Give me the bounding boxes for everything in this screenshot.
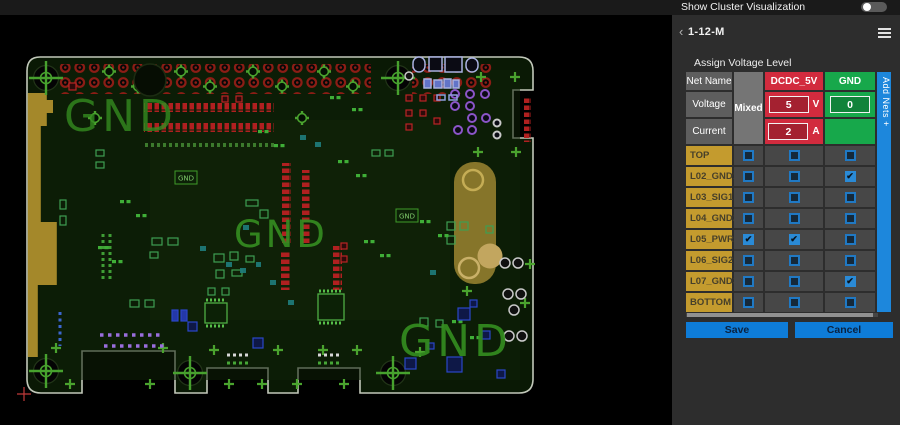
layer-label: BOTTOM bbox=[686, 293, 732, 312]
layer-row-l06_sig2: L06_SIG2 bbox=[686, 251, 875, 270]
layer-label: L07_GND3 bbox=[686, 272, 732, 291]
gnd-text-bottom: GND bbox=[399, 316, 512, 367]
table-header-row: Net Name DCDC_5V GND bbox=[686, 72, 875, 90]
checkbox-cell bbox=[765, 146, 823, 165]
checkbox-checked[interactable]: ✔ bbox=[743, 234, 754, 245]
current-row: Current 2 A bbox=[686, 119, 875, 144]
checkbox[interactable] bbox=[743, 213, 754, 224]
checkbox-cell: ✔ bbox=[825, 167, 875, 186]
cluster-visualization-label: Show Cluster Visualization bbox=[681, 1, 805, 13]
current-row-label: Current bbox=[686, 119, 732, 144]
checkbox[interactable] bbox=[743, 150, 754, 161]
copper-yellow-stadium bbox=[454, 162, 503, 284]
checkbox-cell bbox=[734, 188, 763, 207]
scrollbar-thumb[interactable] bbox=[687, 313, 873, 317]
checkbox[interactable] bbox=[845, 297, 856, 308]
checkbox[interactable] bbox=[743, 171, 754, 182]
dcdc-current-input[interactable]: 2 bbox=[768, 123, 808, 140]
layer-row-l02_gnd1: L02_GND1✔ bbox=[686, 167, 875, 186]
net-header-dcdc-5v[interactable]: DCDC_5V bbox=[765, 72, 823, 90]
checkbox-cell bbox=[825, 230, 875, 249]
checkbox-cell bbox=[765, 188, 823, 207]
checkbox-checked[interactable]: ✔ bbox=[789, 234, 800, 245]
checkbox[interactable] bbox=[789, 171, 800, 182]
toggle-knob bbox=[863, 3, 871, 11]
menu-icon[interactable] bbox=[878, 28, 891, 38]
gnd-text-topleft: GND bbox=[64, 91, 177, 142]
layer-label: TOP bbox=[686, 146, 732, 165]
checkbox[interactable] bbox=[743, 297, 754, 308]
layer-row-bottom: BOTTOM bbox=[686, 293, 875, 312]
checkbox[interactable] bbox=[845, 192, 856, 203]
add-nets-button[interactable]: Add Nets + bbox=[877, 72, 891, 312]
svg-text:GND: GND bbox=[399, 213, 415, 221]
layer-row-top: TOP bbox=[686, 146, 875, 165]
section-title: Assign Voltage Level bbox=[694, 57, 791, 69]
net-header-gnd[interactable]: GND bbox=[825, 72, 875, 90]
checkbox-cell bbox=[825, 293, 875, 312]
voltage-table: Mixed Net Name DCDC_5V GND Voltage 5 V 0 bbox=[686, 72, 875, 312]
checkbox[interactable] bbox=[845, 234, 856, 245]
checkbox[interactable] bbox=[789, 213, 800, 224]
gnd-voltage-input[interactable]: 0 bbox=[830, 96, 870, 113]
horizontal-scrollbar[interactable] bbox=[686, 313, 878, 317]
save-button[interactable]: Save bbox=[686, 322, 788, 338]
layer-label: L06_SIG2 bbox=[686, 251, 732, 270]
layer-label: L03_SIG1 bbox=[686, 188, 732, 207]
checkbox-cell: ✔ bbox=[765, 230, 823, 249]
checkbox-cell bbox=[734, 167, 763, 186]
checkbox[interactable] bbox=[743, 276, 754, 287]
checkbox-cell: ✔ bbox=[825, 272, 875, 291]
layer-row-l07_gnd3: L07_GND3✔ bbox=[686, 272, 875, 291]
checkbox-cell bbox=[734, 293, 763, 312]
checkbox[interactable] bbox=[845, 150, 856, 161]
voltage-unit: V bbox=[813, 99, 820, 110]
checkbox-cell bbox=[825, 146, 875, 165]
app-window: GND GND GND GND GND Show Cluster Visuali… bbox=[0, 0, 900, 425]
panel-title: 1-12-M bbox=[688, 26, 725, 38]
checkbox-cell: ✔ bbox=[734, 230, 763, 249]
gnd-text-middle: GND bbox=[234, 213, 328, 256]
checkbox-cell bbox=[825, 209, 875, 228]
checkbox-cell bbox=[734, 209, 763, 228]
checkbox-checked[interactable]: ✔ bbox=[845, 276, 856, 287]
net-name-header: Net Name bbox=[686, 72, 732, 90]
top-bar: Show Cluster Visualization bbox=[0, 0, 900, 15]
layer-row-l04_gnd2: L04_GND2 bbox=[686, 209, 875, 228]
cancel-button[interactable]: Cancel bbox=[795, 322, 893, 338]
checkbox-cell bbox=[734, 272, 763, 291]
voltage-row-label: Voltage bbox=[686, 92, 732, 117]
layer-label: L04_GND2 bbox=[686, 209, 732, 228]
voltage-panel: ‹ 1-12-M Assign Voltage Level Mixed Net … bbox=[672, 15, 900, 425]
checkbox-cell bbox=[825, 188, 875, 207]
dcdc-voltage-input[interactable]: 5 bbox=[769, 96, 809, 113]
layer-label: L02_GND1 bbox=[686, 167, 732, 186]
checkbox[interactable] bbox=[845, 213, 856, 224]
layer-row-l03_sig1: L03_SIG1 bbox=[686, 188, 875, 207]
checkbox-cell bbox=[765, 167, 823, 186]
checkbox[interactable] bbox=[789, 276, 800, 287]
checkbox-cell bbox=[765, 251, 823, 270]
voltage-row: Voltage 5 V 0 bbox=[686, 92, 875, 117]
checkbox[interactable] bbox=[789, 297, 800, 308]
back-chevron-icon[interactable]: ‹ bbox=[679, 24, 683, 40]
checkbox[interactable] bbox=[845, 255, 856, 266]
mixed-column-cell: Mixed bbox=[734, 72, 763, 144]
checkbox[interactable] bbox=[743, 192, 754, 203]
checkbox-cell bbox=[765, 293, 823, 312]
checkbox[interactable] bbox=[743, 255, 754, 266]
current-unit: A bbox=[812, 126, 819, 137]
panel-header: ‹ 1-12-M bbox=[672, 24, 900, 42]
checkbox-cell bbox=[734, 251, 763, 270]
gnd-current-cell bbox=[825, 119, 875, 144]
checkbox-cell bbox=[765, 272, 823, 291]
layer-row-l05_pwr1: L05_PWR1✔✔ bbox=[686, 230, 875, 249]
layer-rows: TOPL02_GND1✔L03_SIG1L04_GND2L05_PWR1✔✔L0… bbox=[686, 146, 875, 312]
checkbox-cell bbox=[825, 251, 875, 270]
pcb-canvas: GND GND GND GND GND bbox=[0, 0, 672, 425]
svg-text:GND: GND bbox=[178, 175, 194, 183]
checkbox-cell bbox=[734, 146, 763, 165]
checkbox-cell bbox=[765, 209, 823, 228]
layer-label: L05_PWR1 bbox=[686, 230, 732, 249]
checkbox[interactable] bbox=[789, 150, 800, 161]
checkbox-checked[interactable]: ✔ bbox=[845, 171, 856, 182]
cluster-visualization-toggle[interactable] bbox=[861, 2, 887, 12]
checkbox[interactable] bbox=[789, 255, 800, 266]
checkbox[interactable] bbox=[789, 192, 800, 203]
